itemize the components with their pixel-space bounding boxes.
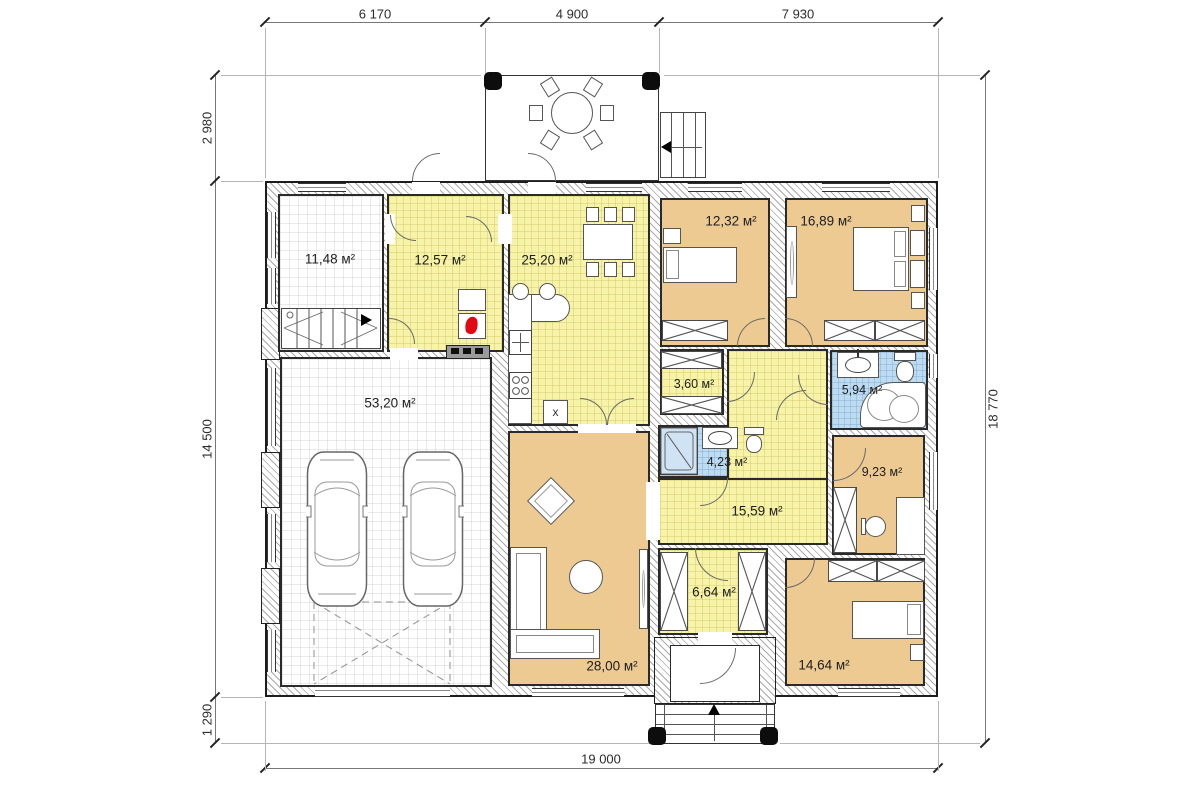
window bbox=[822, 183, 890, 192]
window bbox=[688, 183, 742, 192]
dining-chair bbox=[604, 262, 617, 277]
room-office-area: 9,23 м² bbox=[862, 465, 903, 479]
shower bbox=[660, 427, 698, 475]
pillow bbox=[666, 250, 679, 279]
terrace-chair bbox=[529, 105, 543, 121]
toilet-tank bbox=[894, 352, 916, 361]
steps-direction-arrow bbox=[708, 704, 720, 715]
dining-chair bbox=[622, 262, 635, 277]
door-opening bbox=[390, 348, 418, 360]
floor-plan-canvas: 6 170 4 900 7 930 2 980 14 500 1 290 18 … bbox=[0, 0, 1200, 810]
nightstand bbox=[663, 228, 681, 244]
window bbox=[929, 228, 938, 290]
living-hall-opening bbox=[646, 482, 660, 540]
dim-label-right: 18 770 bbox=[986, 389, 1001, 429]
garage-door-swing bbox=[312, 600, 452, 686]
pillow bbox=[894, 231, 906, 257]
dim-ext bbox=[221, 743, 651, 744]
mirror-glass bbox=[790, 241, 794, 285]
wardrobe bbox=[828, 560, 877, 582]
console-knob bbox=[463, 348, 471, 354]
dim-ext bbox=[221, 697, 263, 698]
bathroom-sink bbox=[702, 427, 738, 449]
sink-basin bbox=[845, 357, 871, 373]
dining-chair bbox=[586, 207, 599, 222]
nightstand bbox=[910, 644, 924, 661]
dim-ext bbox=[780, 743, 980, 744]
terrace-door-opening[interactable] bbox=[412, 182, 440, 194]
window bbox=[929, 452, 938, 510]
window bbox=[267, 368, 276, 446]
tub-basin bbox=[889, 395, 919, 423]
dim-label-top-1: 6 170 bbox=[359, 7, 392, 22]
room-bath1-area: 5,94 м² bbox=[842, 383, 883, 397]
room-bedroom2-area: 16,89 м² bbox=[800, 214, 851, 229]
step-line bbox=[656, 734, 774, 735]
dim-label-top-3: 7 930 bbox=[782, 7, 815, 22]
window bbox=[267, 212, 276, 258]
window bbox=[267, 268, 276, 304]
porch-column bbox=[648, 727, 666, 745]
dim-ext bbox=[664, 75, 980, 76]
dim-ext bbox=[221, 181, 263, 182]
sink-tap bbox=[857, 349, 859, 357]
bed-single bbox=[852, 601, 924, 639]
room-bedroom1-area: 12,32 м² bbox=[705, 214, 756, 229]
kitchen-sink bbox=[509, 330, 532, 355]
room-entry-hall-area: 12,57 м² bbox=[414, 253, 465, 268]
fireplace-top bbox=[458, 289, 486, 311]
terrace-door-opening[interactable] bbox=[528, 182, 556, 194]
car-icon bbox=[402, 450, 464, 608]
room-hall-area: 15,59 м² bbox=[731, 504, 782, 519]
door-arc bbox=[412, 153, 440, 181]
dim-ext bbox=[221, 75, 481, 76]
terrace-table bbox=[551, 92, 593, 134]
dim-ext bbox=[938, 701, 939, 771]
car-icon bbox=[306, 450, 368, 608]
nightstand bbox=[910, 260, 925, 288]
dining-chair bbox=[622, 207, 635, 222]
toilet-tank bbox=[744, 427, 764, 435]
office-chair bbox=[865, 516, 886, 537]
room-vestibule-area: 6,64 м² bbox=[692, 585, 736, 600]
nightstand bbox=[910, 230, 925, 256]
wardrobe bbox=[877, 560, 925, 582]
kitchen-counter-side bbox=[508, 294, 532, 424]
window bbox=[298, 183, 346, 192]
terrace-column bbox=[484, 72, 502, 90]
sink-bowl bbox=[512, 283, 529, 300]
dim-label-left-2: 14 500 bbox=[200, 419, 215, 459]
window bbox=[838, 688, 900, 697]
terrace-chair bbox=[600, 105, 614, 121]
steps-direction-arrow bbox=[661, 141, 671, 153]
tv-panel bbox=[639, 549, 648, 629]
room-bath2-area: 4,23 м² bbox=[707, 455, 748, 469]
desk bbox=[896, 497, 925, 555]
dim-label-bottom: 19 000 bbox=[581, 752, 621, 767]
wall-pilaster bbox=[261, 452, 280, 508]
coffee-table bbox=[569, 560, 603, 594]
tv-lens bbox=[642, 570, 645, 608]
dim-ext bbox=[265, 28, 266, 178]
dim-label-top-2: 4 900 bbox=[556, 7, 589, 22]
wardrobe bbox=[833, 487, 857, 553]
dining-table bbox=[583, 224, 633, 260]
bed-double bbox=[853, 227, 909, 291]
dining-chair bbox=[586, 262, 599, 277]
porch-column bbox=[760, 727, 778, 745]
wardrobe bbox=[662, 320, 728, 341]
room-garage-area: 53,20 м² bbox=[364, 396, 415, 411]
sink-bowl bbox=[539, 283, 556, 300]
window bbox=[532, 688, 624, 697]
bathroom-sink bbox=[837, 352, 879, 378]
dim-label-left-1: 2 980 bbox=[200, 112, 215, 145]
dim-ext bbox=[659, 28, 660, 73]
bed-single bbox=[663, 247, 737, 283]
room-kitchen-area: 25,20 м² bbox=[521, 253, 572, 268]
kitchen-x-cabinet: x bbox=[543, 400, 568, 424]
wardrobe bbox=[875, 320, 925, 341]
window bbox=[267, 630, 276, 672]
room-closet-area: 3,60 м² bbox=[674, 377, 715, 391]
dim-ext bbox=[485, 28, 486, 73]
dining-chair bbox=[604, 207, 617, 222]
dim-line-top bbox=[265, 22, 938, 23]
toilet-bowl bbox=[746, 435, 762, 453]
step-line bbox=[671, 113, 672, 177]
mirror bbox=[786, 226, 797, 298]
tv-console bbox=[446, 345, 490, 359]
pillow bbox=[894, 261, 906, 287]
stairs bbox=[281, 308, 381, 349]
shelf bbox=[911, 205, 925, 222]
dim-line-bottom bbox=[265, 768, 938, 769]
wardrobe bbox=[660, 552, 688, 631]
armchair-cushion bbox=[534, 484, 568, 518]
window bbox=[586, 183, 642, 192]
console-knob bbox=[475, 348, 483, 354]
wardrobe bbox=[661, 351, 722, 369]
room-bedroom3-area: 14,64 м² bbox=[798, 658, 849, 673]
stove bbox=[509, 372, 532, 399]
window bbox=[929, 354, 938, 378]
wardrobe bbox=[738, 552, 766, 631]
garage-door[interactable] bbox=[315, 686, 450, 697]
office-chair-back bbox=[861, 518, 866, 535]
kitchen-living-opening bbox=[578, 424, 636, 433]
wardrobe bbox=[824, 320, 875, 341]
terrace-column bbox=[642, 72, 660, 90]
dim-line-left bbox=[215, 75, 216, 743]
pillow bbox=[907, 604, 921, 635]
shelf bbox=[911, 292, 925, 309]
step-line bbox=[656, 724, 774, 725]
wall-pilaster bbox=[261, 568, 280, 624]
step-line bbox=[683, 113, 684, 177]
room-living-area: 28,00 м² bbox=[586, 659, 637, 674]
sofa-cushion bbox=[516, 635, 594, 653]
sink-basin bbox=[708, 431, 732, 445]
door-opening bbox=[498, 214, 512, 244]
wardrobe bbox=[661, 396, 722, 414]
toilet-bowl bbox=[896, 361, 914, 382]
window bbox=[267, 514, 276, 562]
dim-label-left-3: 1 290 bbox=[200, 704, 215, 737]
room-boiler-area: 11,48 м² bbox=[305, 252, 355, 267]
console-knob bbox=[451, 348, 459, 354]
dim-ext bbox=[938, 28, 939, 178]
dim-ext bbox=[265, 701, 266, 771]
step-line bbox=[695, 113, 696, 177]
sofa-chaise bbox=[510, 629, 600, 659]
